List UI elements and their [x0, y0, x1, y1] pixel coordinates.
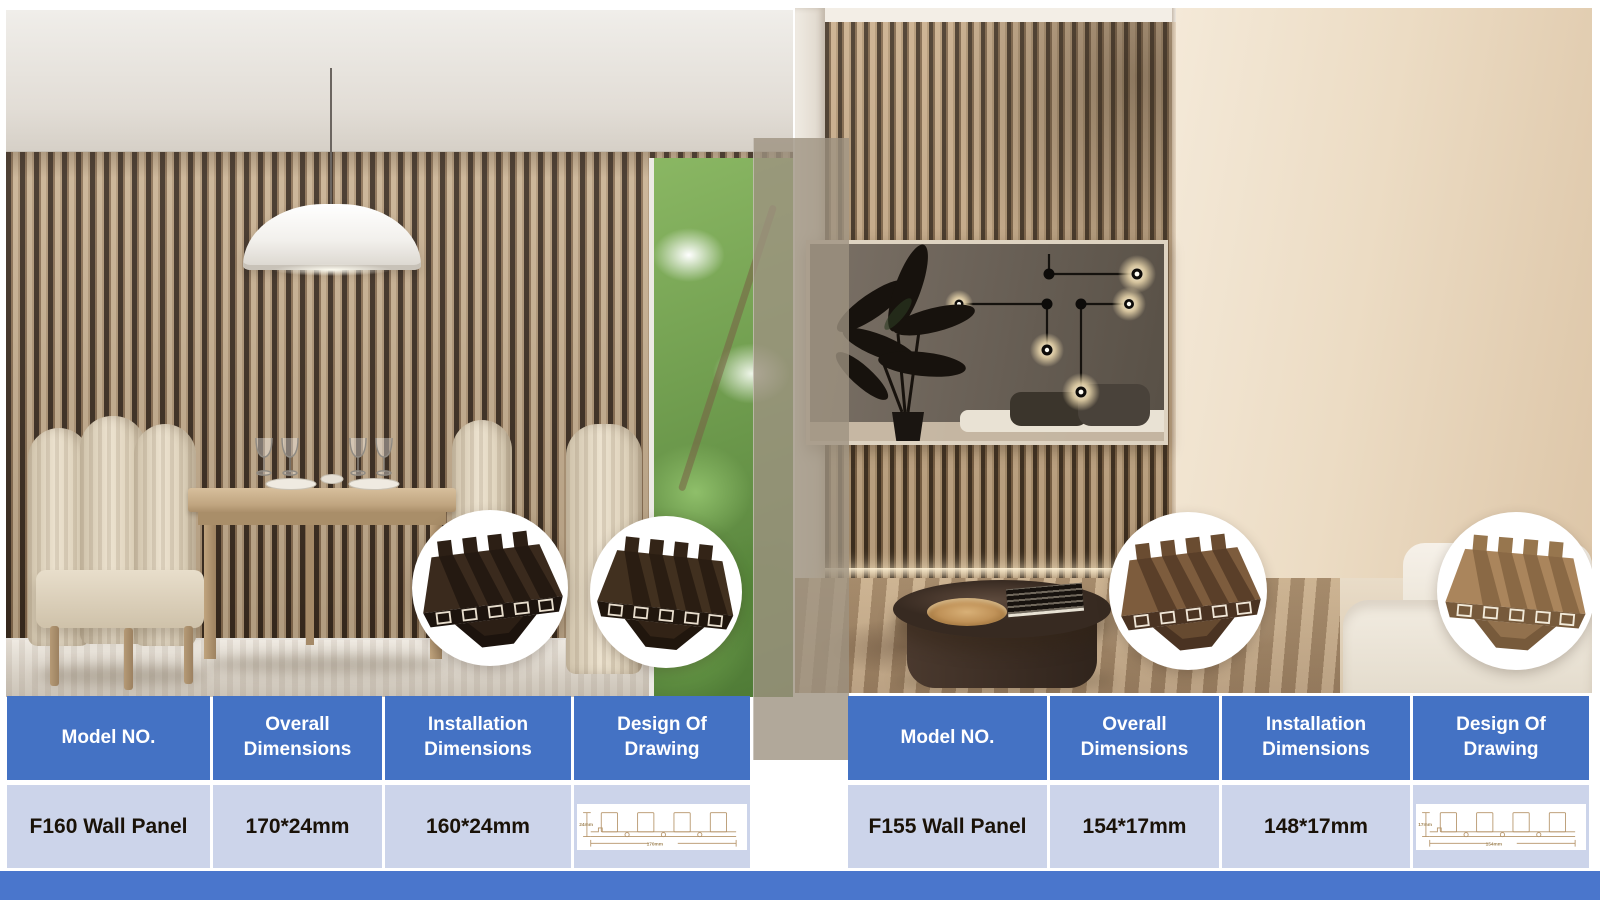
spec-table-right: Model NO. Overall Dimensions Installatio… [848, 696, 1589, 868]
header-installation-dimensions: Installation Dimensions [1222, 696, 1410, 780]
panel-profile-espresso [415, 513, 565, 663]
drawing-width-label: 154mm [1486, 841, 1502, 847]
chair-seat [36, 570, 204, 628]
panel-sample-circle [1437, 512, 1592, 670]
installation-dimensions-cell: 160*24mm [385, 785, 571, 868]
product-spec-page: Model NO. Overall Dimensions Installatio… [0, 0, 1600, 900]
drawing-height-label: 17mm [1418, 822, 1432, 828]
wine-glasses [256, 438, 392, 475]
chair-leg [184, 626, 193, 684]
header-overall-dimensions: Overall Dimensions [1050, 696, 1219, 780]
panel-profile-oak [1441, 516, 1591, 666]
panel-sample-circle [590, 516, 742, 668]
wall-light-cores [957, 272, 1139, 395]
model-cell: F155 Wall Panel [848, 785, 1047, 868]
translucent-divider-strip [753, 138, 849, 760]
design-drawing-cell: 17mm 154mm [1413, 785, 1589, 868]
drawing-height-label: 24mm [579, 822, 593, 828]
header-installation-dimensions: Installation Dimensions [385, 696, 571, 780]
panel-sample-circle [1109, 512, 1267, 670]
design-drawing-cell: 24mm 170mm [574, 785, 750, 868]
lamp-glow [253, 262, 411, 278]
table-leg [306, 525, 314, 645]
plate [349, 479, 399, 490]
chair-leg [50, 626, 59, 686]
lamp-cord [330, 68, 332, 206]
dining-table-apron [198, 512, 446, 525]
bottom-accent-bar [0, 871, 1600, 900]
wall-light-dots [955, 269, 1143, 398]
bowl [321, 475, 343, 484]
panel-cross-section-drawing: 24mm 170mm [577, 805, 747, 849]
panel-sample-circle [412, 510, 568, 666]
wall-art-scene [810, 244, 1168, 445]
wall-art-frame [806, 240, 1168, 445]
model-cell: F160 Wall Panel [7, 785, 210, 868]
installation-dimensions-cell: 148*17mm [1222, 785, 1410, 868]
panel-profile-walnut [1113, 516, 1263, 666]
right-room-photo [795, 8, 1592, 693]
table-leg [204, 525, 216, 659]
round-tray [927, 598, 1007, 626]
plant-silhouette [830, 244, 978, 445]
panel-profile-espresso [593, 519, 739, 665]
plate [266, 479, 316, 490]
overall-dimensions-cell: 154*17mm [1050, 785, 1219, 868]
drawing-width-label: 170mm [647, 841, 663, 847]
spec-table-left: Model NO. Overall Dimensions Installatio… [7, 696, 750, 868]
header-model-no: Model NO. [7, 696, 210, 780]
tableware [246, 434, 426, 492]
plain-wall [1176, 8, 1592, 578]
header-design-of-drawing: Design Of Drawing [574, 696, 750, 780]
table-shadow [206, 655, 446, 673]
design-drawing-left: 24mm 170mm [577, 804, 747, 850]
left-room-photo [6, 10, 793, 697]
design-drawing-right: 17mm 154mm [1416, 804, 1586, 850]
header-model-no: Model NO. [848, 696, 1047, 780]
chair-shadow [36, 665, 206, 685]
ceiling [6, 10, 793, 152]
panel-cross-section-drawing: 17mm 154mm [1416, 805, 1586, 849]
chair-leg [124, 628, 133, 690]
header-design-of-drawing: Design Of Drawing [1413, 696, 1589, 780]
overall-dimensions-cell: 170*24mm [213, 785, 382, 868]
header-overall-dimensions: Overall Dimensions [213, 696, 382, 780]
